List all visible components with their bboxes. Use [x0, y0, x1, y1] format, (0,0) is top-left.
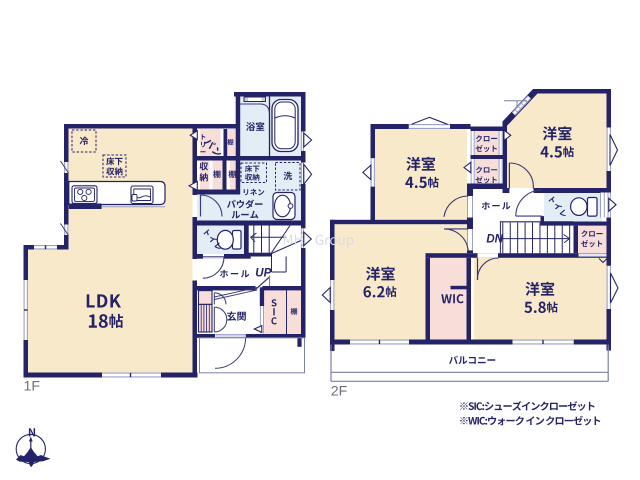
svg-text:UP: UP: [255, 267, 271, 279]
svg-text:2F: 2F: [331, 384, 348, 400]
svg-text:1F: 1F: [24, 378, 41, 394]
svg-text:DN: DN: [486, 234, 503, 246]
